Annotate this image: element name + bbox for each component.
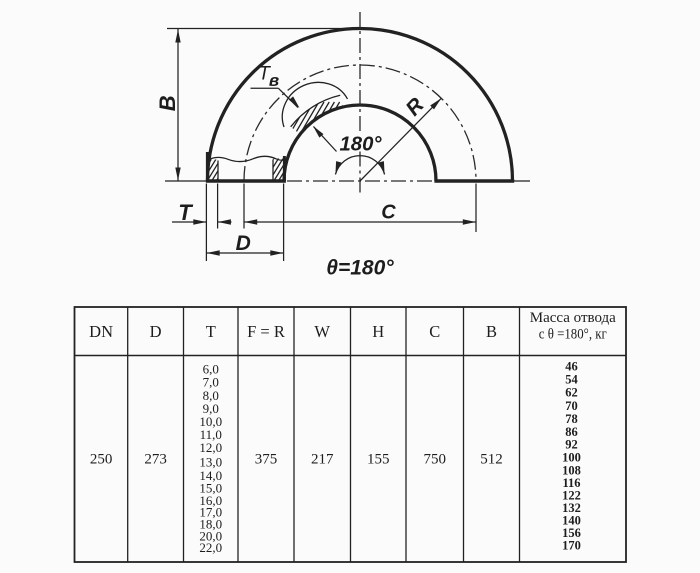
svg-text:T: T — [206, 322, 216, 341]
svg-text:155: 155 — [367, 452, 390, 468]
svg-text:с θ =180°, кг: с θ =180°, кг — [539, 327, 607, 343]
svg-text:100: 100 — [562, 451, 581, 465]
svg-text:46: 46 — [565, 360, 578, 374]
svg-text:170: 170 — [562, 539, 581, 553]
svg-text:92: 92 — [565, 438, 578, 452]
svg-text:F = R: F = R — [247, 322, 285, 341]
svg-text:22,0: 22,0 — [199, 540, 222, 555]
svg-text:B: B — [486, 322, 497, 341]
svg-text:D: D — [236, 232, 251, 255]
svg-text:B: B — [155, 95, 180, 111]
svg-text:512: 512 — [480, 452, 503, 468]
svg-text:C: C — [381, 202, 396, 224]
svg-text:W: W — [314, 322, 330, 341]
svg-text:78: 78 — [565, 412, 578, 426]
svg-text:70: 70 — [565, 399, 578, 413]
svg-text:54: 54 — [565, 373, 578, 387]
svg-text:D: D — [150, 322, 162, 341]
svg-text:217: 217 — [311, 452, 334, 468]
svg-text:C: C — [429, 322, 440, 341]
svg-text:750: 750 — [424, 452, 447, 468]
svg-text:в: в — [269, 71, 279, 90]
svg-text:250: 250 — [90, 452, 113, 468]
svg-text:273: 273 — [144, 452, 167, 468]
svg-text:Масса отвода: Масса отвода — [530, 310, 616, 326]
svg-text:DN: DN — [89, 322, 113, 341]
svg-text:R: R — [401, 93, 429, 120]
svg-text:θ=180°: θ=180° — [326, 257, 394, 280]
svg-text:62: 62 — [565, 386, 578, 400]
svg-text:180°: 180° — [340, 133, 383, 155]
svg-text:H: H — [372, 322, 384, 341]
svg-text:T: T — [178, 200, 193, 225]
svg-text:375: 375 — [255, 452, 278, 468]
svg-text:12,0: 12,0 — [199, 440, 222, 455]
